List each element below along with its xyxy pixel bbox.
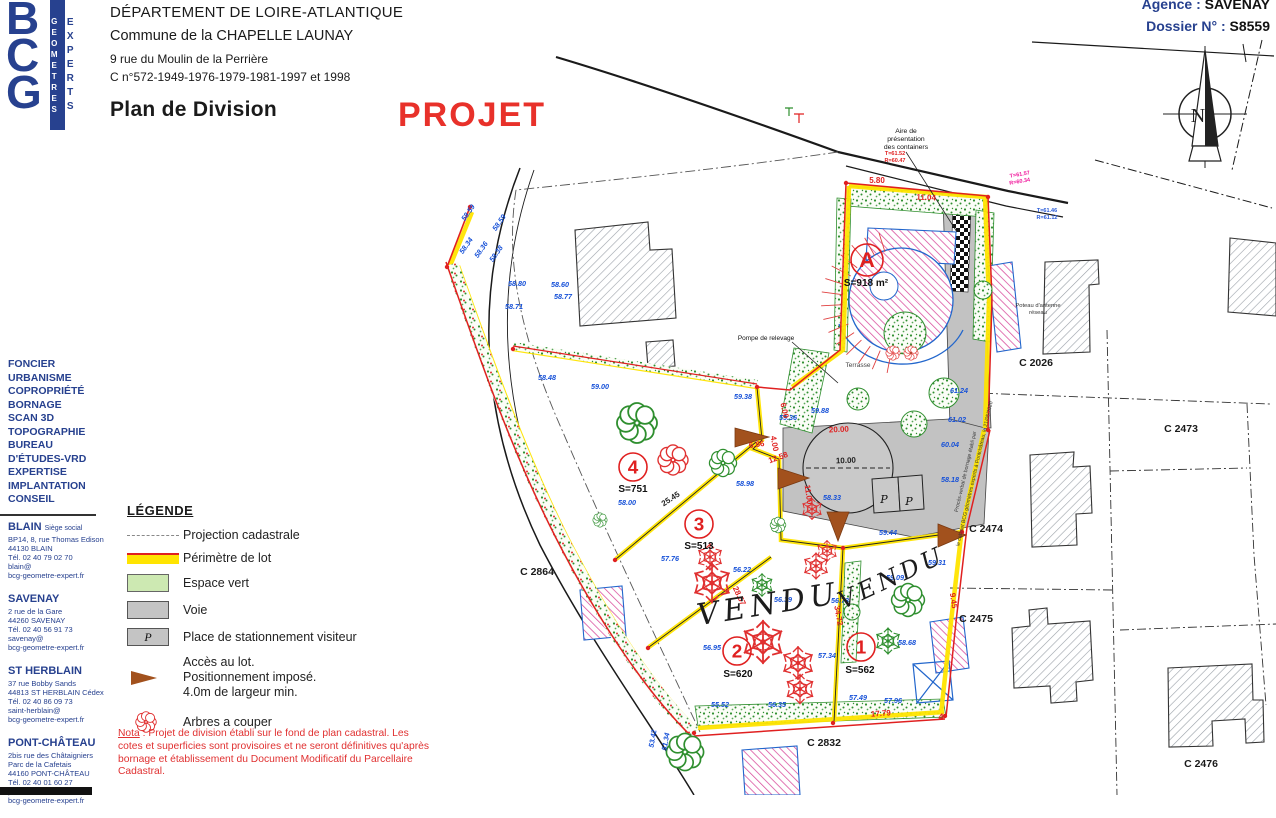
dossier-value: S8559 (1230, 18, 1270, 34)
plan-annotation: des containers (884, 144, 929, 151)
elevation-label: 61.02 (948, 415, 966, 424)
elevation-label: 59.44 (879, 528, 897, 537)
scanned-plan-page: { "colors": { "brand_blue": "#27418f", "… (0, 0, 1276, 795)
legend-item-label: Espace vert (183, 576, 249, 590)
measure-label: R=60.47 (885, 158, 906, 164)
dashed-line-icon (127, 535, 179, 536)
sidebar-offices: BLAINSiège socialBP14, 8, rue Thomas Edi… (8, 521, 118, 818)
measure-label: 20.00 (829, 424, 850, 434)
legend-item-label: Projection cadastrale (183, 528, 300, 542)
flower-tree-icon (709, 449, 736, 476)
parcel-dash-line (1107, 330, 1117, 795)
measure-label: T=61.52 (885, 151, 905, 157)
address-line: 9 rue du Moulin de la Perrière (110, 52, 590, 66)
elevation-label: 59.88 (811, 406, 829, 415)
plan-annotation: présentation (887, 136, 925, 143)
nota-label: Nota (118, 728, 140, 739)
boundary-marker (646, 646, 650, 650)
building (1228, 238, 1276, 316)
building (1168, 664, 1264, 747)
office-line: 44130 BLAIN (8, 544, 118, 553)
lot-number: 1 (856, 637, 867, 658)
parcel-boundaries (950, 330, 1276, 795)
lot-area: S=918 m² (844, 278, 889, 289)
access-arrow-icon (827, 512, 849, 541)
office-line: 2bis rue des Châtaigniers (8, 751, 118, 760)
snow-tree-icon (784, 674, 815, 705)
north-arrow: N (1163, 46, 1247, 168)
measure-label: 6.86 (748, 439, 765, 450)
legend-title: LÉGENDE (127, 503, 427, 518)
elevation-label: 53.42 (647, 729, 659, 748)
measure-label: 9.45 (948, 592, 959, 609)
office-city: PONT-CHÂTEAU (8, 737, 118, 749)
parcel-label: C 2473 (1164, 423, 1198, 435)
legend-icon-cell (127, 574, 183, 592)
measure-label: 10.00 (836, 456, 857, 466)
elevation-label: 57.76 (661, 554, 680, 563)
parcel-dash-line (950, 588, 1113, 590)
elevation-label: 58.59 (459, 203, 477, 223)
terrace-comb-line (846, 340, 861, 355)
lot-area: S=562 (845, 665, 875, 676)
plan-annotation: Poteau d'antenne (1015, 303, 1060, 309)
flower-tree-icon (593, 513, 607, 527)
dossier-label: Dossier N° : (1146, 18, 1226, 34)
legend-item-label: Voie (183, 603, 207, 617)
scan-artifact-bar (0, 787, 92, 795)
lot-number: 3 (694, 514, 705, 535)
road-area-icon (127, 601, 169, 619)
agency-block: Agence : SAVENAY Dossier N° : S8559 (1142, 0, 1270, 38)
office-line: 44260 SAVENAY (8, 616, 118, 625)
elevation-label: 57.34 (818, 651, 836, 660)
lot-division-black (834, 548, 843, 722)
sidebar-service: URBANISME (8, 372, 86, 386)
elevation-label: 58.77 (554, 292, 573, 301)
sidebar-divider (0, 514, 96, 516)
parcel-label: C 2475 (959, 613, 993, 625)
parcel-label: C 2474 (969, 523, 1003, 535)
snow-tree-icon (781, 646, 815, 680)
legend-icon-cell (127, 601, 183, 619)
projection-cadastrale-line (516, 152, 838, 190)
roads (489, 40, 1274, 795)
road-tick (1243, 44, 1246, 62)
road-edge (556, 57, 838, 152)
legend-item-label: Arbres a couper (183, 715, 272, 729)
legend-item-projection: Projection cadastrale (127, 528, 427, 542)
agency-value: SAVENAY (1205, 0, 1270, 12)
elevation-label: 58.18 (941, 475, 959, 484)
flower-tree-icon (886, 346, 900, 360)
utility-pole-icon (785, 108, 793, 116)
office-block: ST HERBLAIN37 rue Bobby Sands44813 ST HE… (8, 665, 118, 724)
parcel-dash-line (1232, 40, 1262, 170)
plan-annotation: P (879, 493, 888, 506)
north-label: N (1191, 105, 1205, 127)
legend-item-espace-vert: Espace vert (127, 574, 427, 592)
office-block: SAVENAY2 rue de la Gare44260 SAVENAYTél.… (8, 593, 118, 652)
utility-pole-icon (794, 114, 804, 123)
elevation-label: 61.24 (950, 386, 968, 395)
boundary-marker (986, 195, 990, 199)
boundary-marker (692, 731, 696, 735)
parcel-dash-line (1247, 404, 1266, 705)
boundary-marker (831, 721, 835, 725)
office-city: BLAINSiège social (8, 521, 118, 533)
legend-acces-line: Accès au lot. (183, 655, 316, 670)
office-line: savenay@ (8, 634, 118, 643)
sidebar-service: CONSEIL (8, 493, 86, 507)
access-arrow-icon (131, 671, 157, 685)
parcel-label: C 2476 (1184, 758, 1218, 770)
elevation-label: 60.04 (941, 440, 959, 449)
sidebar-service: BORNAGE (8, 399, 86, 413)
terrace-comb-line (859, 346, 871, 363)
building-to-remove (742, 746, 800, 795)
elevation-label: 58.68 (898, 638, 916, 647)
boundary-marker (755, 385, 759, 389)
nota-block: Nota : Projet de division établi sur le … (118, 728, 436, 779)
office-line: Parc de la Cafetais (8, 760, 118, 769)
legend-item-label: Périmètre de lot (183, 551, 271, 565)
legend-acces-line: 4.0m de largeur min. (183, 685, 316, 700)
office-line: bcg-geometre-expert.fr (8, 571, 118, 580)
parcel-dash-line (1120, 624, 1276, 630)
legend-icon-cell (127, 671, 183, 685)
plan-annotation: Terrasse (846, 362, 871, 369)
legend-icon-cell (127, 553, 183, 564)
office-city: ST HERBLAIN (8, 665, 118, 677)
elevation-label: 58.71 (505, 302, 523, 311)
office-line: Tél. 02 40 79 02 70 (8, 553, 118, 562)
plan-annotation: P (904, 495, 913, 508)
legend: LÉGENDE Projection cadastrale Périmètre … (127, 503, 427, 744)
sidebar-service: IMPLANTATION (8, 480, 86, 494)
parcel-dash-line (1095, 160, 1272, 208)
sidebar-service: SCAN 3D (8, 412, 86, 426)
elevation-label: 58.33 (823, 493, 841, 502)
plan-annotation: VENDU (695, 576, 843, 633)
boundary-marker (841, 546, 845, 550)
bcg-logo: BCG GEOMETRES EXPERTS (6, 0, 102, 130)
plan-annotation: Pompe de relevage (738, 335, 795, 342)
legend-item-acces: Accès au lot. Positionnement imposé. 4.0… (127, 655, 427, 700)
office-line: saint-herblain@ (8, 706, 118, 715)
lot-area: S=513 (684, 541, 714, 552)
measure-label: 17.79 (871, 708, 892, 718)
office-line: BP14, 8, rue Thomas Edison (8, 535, 118, 544)
elevation-label: 58.38 (487, 244, 505, 264)
parcel-label: C 2026 (1019, 357, 1053, 369)
office-line: 37 rue Bobby Sands (8, 679, 118, 688)
office-line: Tél. 02 40 86 09 73 (8, 697, 118, 706)
office-line: 44813 ST HERBLAIN Cédex (8, 688, 118, 697)
building (1030, 452, 1092, 547)
road-edge (1032, 42, 1274, 56)
plan-annotation: réseau (1029, 310, 1047, 316)
elevation-label: 56.22 (733, 565, 751, 574)
elevation-label: 58.00 (618, 498, 636, 507)
office-line: Tél. 02 40 01 60 27 (8, 778, 118, 787)
legend-item-stationnement: P Place de stationnement visiteur (127, 628, 427, 646)
lot-number: 4 (628, 457, 639, 478)
legend-icon-cell: P (127, 628, 183, 646)
hedges (452, 264, 757, 733)
green-area-icon (127, 574, 169, 592)
lot-area: S=751 (618, 484, 648, 495)
measure-label: 5.80 (869, 176, 885, 185)
sidebar-service: COPROPRIÉTÉ (8, 385, 86, 399)
boundary-marker (844, 181, 848, 185)
flower-tree-icon (770, 517, 786, 533)
logo-monogram: BCG (6, 0, 50, 130)
office-suffix: Siège social (45, 525, 83, 532)
sidebar-service: EXPERTISE (8, 466, 86, 480)
bush-icon (847, 388, 869, 410)
lot-area: S=620 (723, 669, 753, 680)
sidebar-service: FONCIER (8, 358, 86, 372)
office-line: blain@ (8, 562, 118, 571)
agency-label: Agence : (1142, 0, 1201, 12)
office-block: BLAINSiège socialBP14, 8, rue Thomas Edi… (8, 521, 118, 580)
elevation-label: 58.80 (508, 279, 526, 288)
legend-acces-line: Positionnement imposé. (183, 670, 316, 685)
legend-item-label: Place de stationnement visiteur (183, 630, 357, 644)
office-line: bcg-geometre-expert.fr (8, 643, 118, 652)
projet-stamp: PROJET (398, 96, 546, 135)
bush-icon (974, 281, 992, 299)
perimeter-band-icon (127, 553, 179, 564)
bush-icon (901, 411, 927, 437)
legend-item-perimetre: Périmètre de lot (127, 551, 427, 565)
parcel-label: C 2864 (520, 566, 554, 578)
boundary-marker (613, 558, 617, 562)
measure-label: 11.04 (916, 192, 937, 202)
flower-tree-icon (617, 403, 657, 443)
measure-label: R=61.12 (1037, 215, 1058, 221)
building (575, 222, 676, 326)
sidebar-service: BUREAU (8, 439, 86, 453)
snow-tree-icon (802, 552, 830, 579)
perimeter (458, 266, 697, 730)
logo-experts-strip: EXPERTS (65, 0, 82, 130)
boundary-marker (445, 265, 449, 269)
office-line: bcg-geometre-expert.fr (8, 715, 118, 724)
lot-number: A (859, 247, 875, 272)
measure-label: T=61.46 (1037, 208, 1057, 214)
parcel-dash-line (1110, 468, 1247, 471)
sidebar-service: TOPOGRAPHIE (8, 426, 86, 440)
department-line: DÉPARTEMENT DE LOIRE-ATLANTIQUE (110, 4, 590, 21)
agency-line: Agence : SAVENAY (1142, 0, 1270, 15)
plan-annotation: Aire de (895, 128, 917, 135)
elevation-label: 59.38 (734, 392, 752, 401)
commune-line: Commune de la CHAPELLE LAUNAY (110, 28, 590, 44)
elevation-label: 58.48 (538, 373, 556, 382)
lot-number: 2 (732, 641, 743, 662)
office-city: SAVENAY (8, 593, 118, 605)
legend-item-label: Accès au lot. Positionnement imposé. 4.0… (183, 655, 316, 700)
office-line: 44160 PONT-CHÂTEAU (8, 769, 118, 778)
office-line: 2 rue de la Gare (8, 607, 118, 616)
north-arrow-foot (1189, 146, 1221, 161)
nota-text: : Projet de division établi sur le fond … (118, 728, 429, 777)
parking-icon: P (127, 628, 169, 646)
elevation-label: 58.59 (490, 213, 508, 233)
legend-icon-cell (127, 535, 183, 536)
office-line: bcg-geometre-expert.fr (8, 796, 118, 805)
sidebar-service: D'ÉTUDES-VRD (8, 453, 86, 467)
elevation-label: 56.35 (768, 700, 787, 709)
measure-label: 4 (938, 712, 943, 722)
office-line: Tél. 02 40 56 91 73 (8, 625, 118, 634)
sidebar-services: FONCIERURBANISMECOPROPRIÉTÉBORNAGESCAN 3… (8, 358, 86, 507)
flower-tree-icon (666, 733, 703, 770)
parcel-dash-line (950, 392, 1270, 404)
flower-tree-icon (658, 445, 688, 475)
measure-label: 4.00 (769, 435, 781, 452)
legend-item-voie: Voie (127, 601, 427, 619)
dossier-line: Dossier N° : S8559 (1142, 15, 1270, 37)
elevation-label: 57.49 (849, 693, 867, 702)
elevation-label: 55.52 (711, 700, 729, 709)
elevation-label: 59.00 (591, 382, 609, 391)
elevation-label: 58.98 (736, 479, 754, 488)
logo-geometres-strip: GEOMETRES (50, 0, 65, 130)
boundary-marker (511, 347, 515, 351)
cadastre-refs-line: C n°572-1949-1976-1979-1981-1997 et 1998 (110, 70, 590, 84)
building (1012, 608, 1093, 703)
parcel-label: C 2832 (807, 737, 841, 749)
elevation-label: 57.96 (884, 696, 903, 705)
elevation-label: 58.60 (551, 280, 569, 289)
elevation-label: 56.95 (703, 643, 722, 652)
